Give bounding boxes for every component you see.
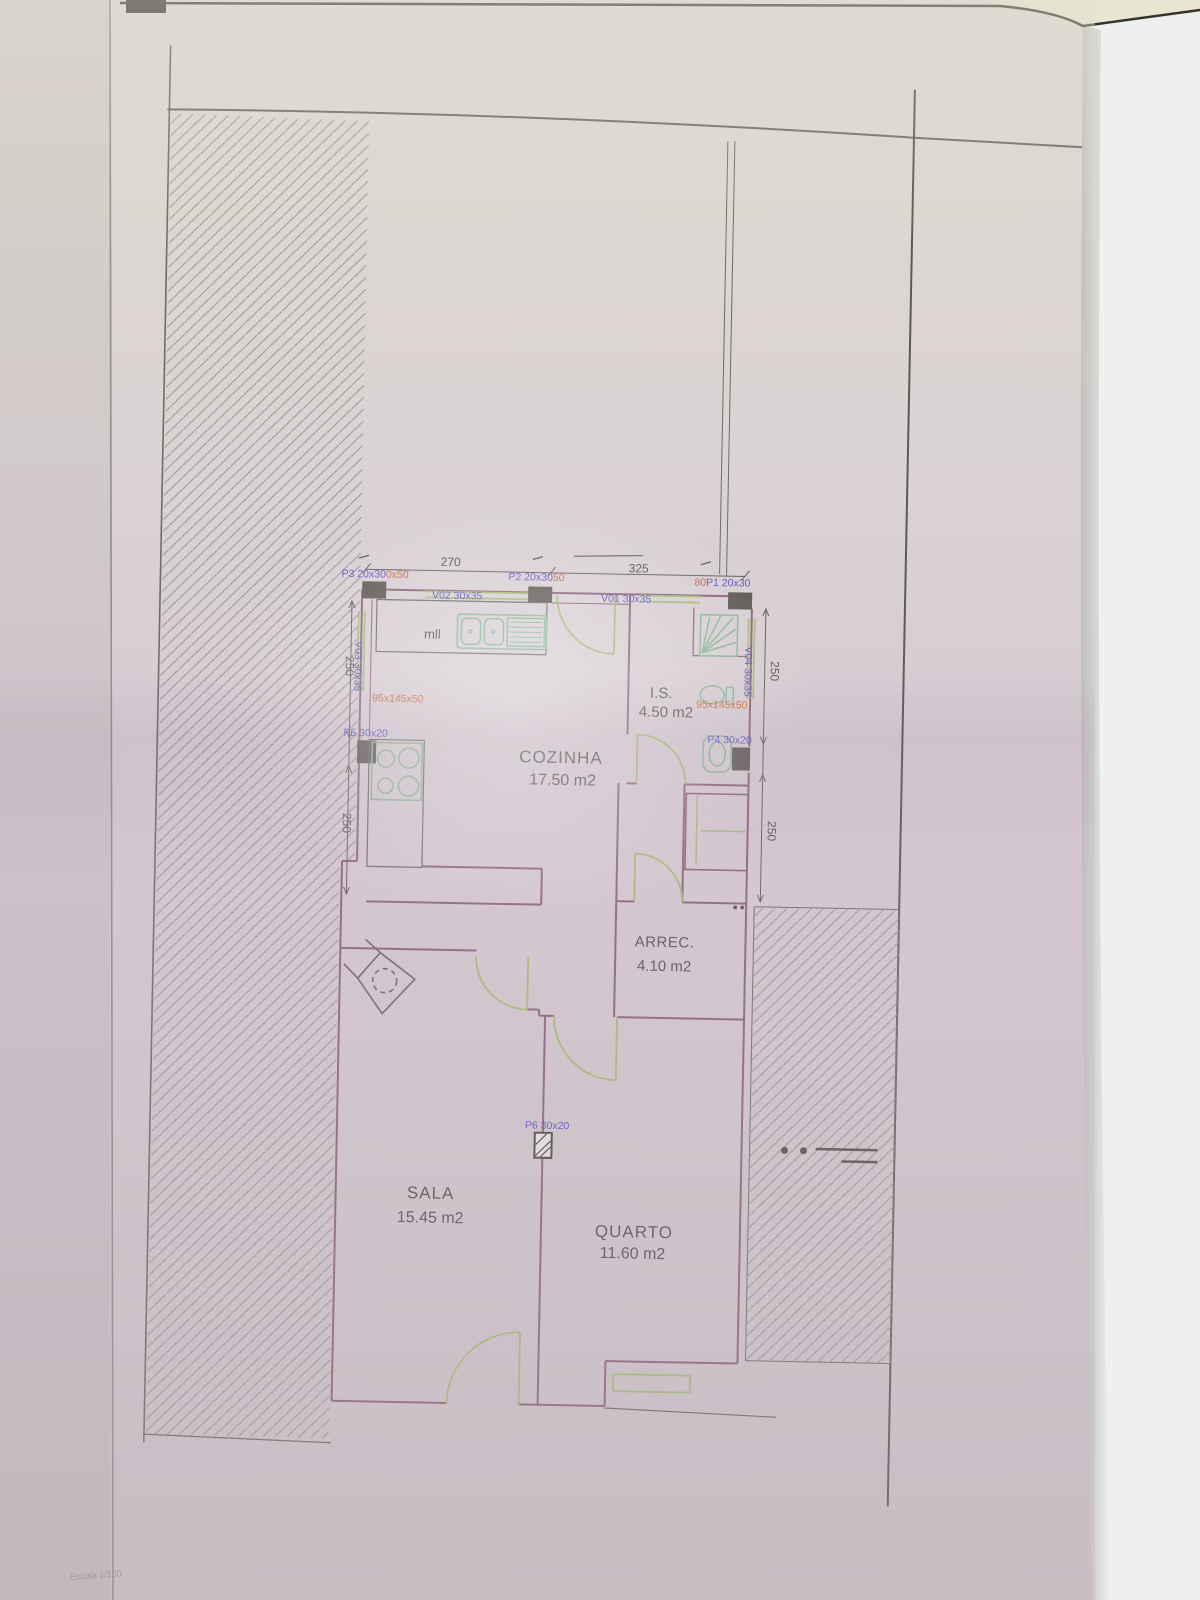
window-v01-label: V01 30x35	[601, 593, 652, 606]
room-sala-name: SALA	[407, 1183, 455, 1203]
room-arrec-name: ARREC.	[634, 933, 694, 951]
dim-325: 325	[629, 561, 650, 575]
room-cozinha-area: 17.50 m2	[529, 771, 596, 789]
column-p6	[534, 1133, 551, 1158]
room-is-name: I.S.	[650, 685, 673, 702]
door-p3-beam: 0x50	[386, 569, 409, 581]
dim-right-upper-250: 250	[768, 661, 782, 682]
door-p3-id: P3 20x30	[341, 568, 386, 581]
room-cozinha-name: COZINHA	[519, 747, 603, 768]
window-v04-label: V04 30x35	[741, 646, 754, 697]
door-p1-label: 80P1 20x30	[694, 577, 750, 590]
door-p6-label: P6 30x20	[525, 1119, 570, 1132]
door-p3-label: P3 20x300x50	[341, 568, 409, 581]
column-p5	[357, 740, 376, 763]
room-quarto-name: QUARTO	[595, 1222, 673, 1242]
dim-270: 270	[441, 555, 462, 569]
floor-plan-drawing: COZINHA 17.50 m2 I.S. 4.50 m2 ARREC. 4.1…	[0, 0, 1200, 1600]
dim-left-upper-250: 250	[343, 656, 357, 677]
sill-right-label: 95x145x50	[696, 699, 748, 712]
room-arrec-area: 4.10 m2	[637, 958, 692, 976]
door-p1-id: P1 20x30	[706, 577, 751, 590]
door-p2-beam: 50	[553, 572, 565, 584]
room-sala-area: 15.45 m2	[397, 1209, 464, 1227]
room-quarto-area: 11.60 m2	[600, 1245, 666, 1263]
page-fold-strip	[0, 0, 110, 1600]
appliance-label: mll	[424, 626, 441, 641]
door-p1-beam: 80	[694, 577, 706, 589]
column-p2	[528, 586, 552, 602]
door-p2-id: P2 20x30	[508, 571, 553, 584]
room-is-area: 4.50 m2	[639, 704, 694, 722]
door-p4-label: P4 30x20	[707, 734, 752, 747]
door-p5-label: P5 30x20	[343, 727, 388, 740]
photographed-floor-plan-page: COZINHA 17.50 m2 I.S. 4.50 m2 ARREC. 4.1…	[0, 0, 1200, 1600]
door-p2-label: P2 20x3050	[508, 571, 564, 584]
dim-left-lower-250: 250	[340, 813, 354, 834]
sill-left-label: 95x145x50	[372, 692, 424, 705]
column-p1	[728, 592, 752, 609]
binder-mark	[126, 0, 166, 13]
right-yard-hatch	[745, 907, 899, 1364]
window-v02-label: V02 30x35	[432, 590, 483, 603]
column-p3	[362, 581, 386, 598]
column-p4	[732, 747, 750, 770]
dim-right-lower-250: 250	[764, 821, 778, 842]
